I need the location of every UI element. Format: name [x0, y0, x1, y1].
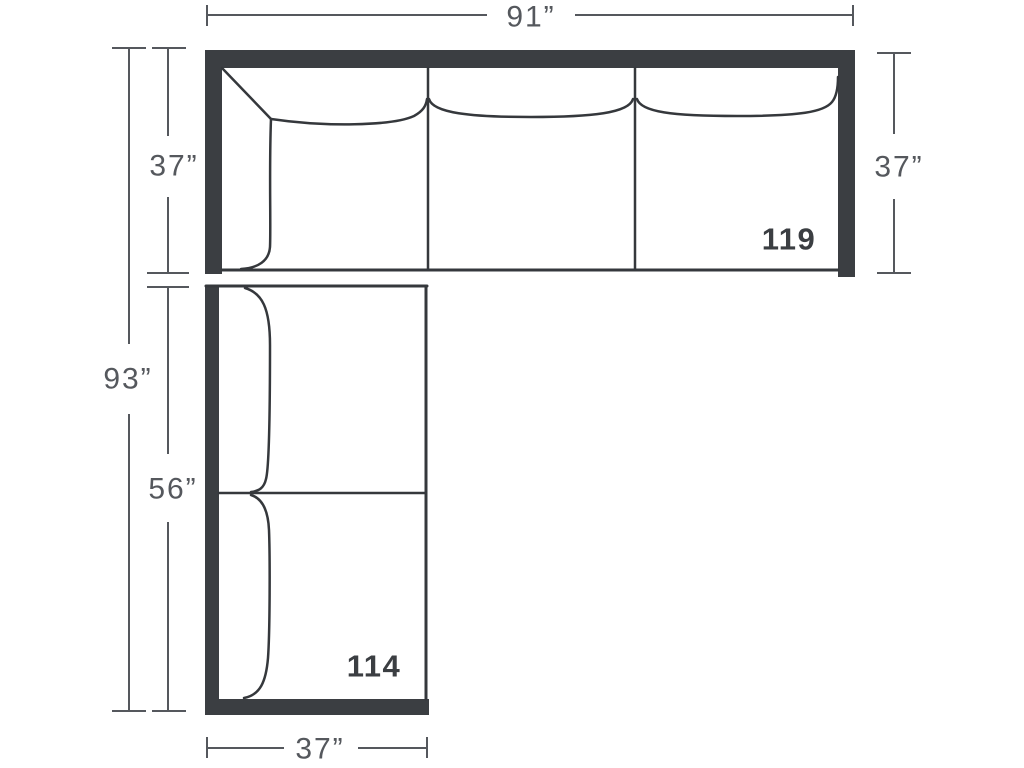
dim-text-left-upper: 37” — [149, 150, 198, 183]
sofa-back-frame — [205, 50, 855, 68]
back-cushion-edge — [271, 99, 427, 124]
dimension-left-upper: 37” — [147, 48, 199, 273]
dim-text-top-width: 91” — [506, 1, 555, 34]
dim-text-left-lower: 56” — [148, 473, 197, 506]
piece-label-119: 119 — [762, 222, 817, 257]
corner-cushion-edge — [241, 119, 271, 269]
dimension-bottom-width: 37” — [207, 733, 427, 766]
piece-label-114: 114 — [347, 649, 402, 684]
chaise-end-frame — [205, 699, 429, 715]
sofa-piece-top-119: 119 — [205, 50, 855, 277]
sofa-right-arm-frame — [838, 50, 855, 277]
back-cushion-edge — [245, 288, 270, 492]
dim-text-left-total: 93” — [103, 363, 152, 396]
back-cushion-edge — [429, 99, 633, 117]
back-cushion-edge — [637, 77, 838, 116]
dimension-left-lower: 56” — [147, 287, 198, 711]
sectional-dimension-diagram: 91” 93” 37” 56” — [0, 0, 1024, 768]
dimension-top-width: 91” — [207, 1, 853, 34]
dim-text-right-height: 37” — [874, 151, 923, 184]
dimension-right-height: 37” — [874, 53, 923, 273]
dimension-left-total: 93” — [103, 48, 152, 711]
back-cushion-edge — [244, 495, 270, 698]
corner-diagonal-seam — [222, 68, 271, 119]
chaise-back-frame — [205, 286, 219, 715]
diagram-svg: 91” 93” 37” 56” — [0, 0, 1024, 768]
sofa-piece-bottom-114: 114 — [205, 286, 429, 715]
dim-text-bottom-width: 37” — [295, 733, 344, 766]
sofa-left-frame — [205, 50, 222, 274]
